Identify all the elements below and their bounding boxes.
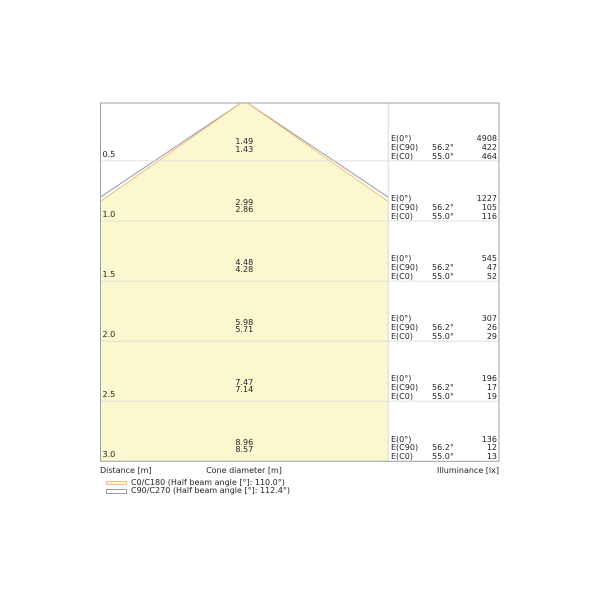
light-cone-diagram: 0.5 1.49 1.43 E(0°) 4908 E(C90) 56.2° 42…	[0, 0, 600, 600]
c90-c270-line-swatch	[106, 489, 127, 494]
illuminance-block: E(0°) 196 E(C90) 56.2° 17 E(C0) 55.0° 19	[388, 375, 499, 402]
illuminance-block: E(0°) 4908 E(C90) 56.2° 422 E(C0) 55.0° …	[388, 135, 499, 162]
cone-diameter-c0-c180-value: 5.71	[194, 326, 294, 333]
distance-tick-label: 1.5	[103, 271, 116, 279]
cone-diameter-values: 7.47 7.14	[194, 379, 294, 394]
illuminance-line-ec0: E(C0) 55.0° 19	[388, 393, 499, 402]
cone-diameter-values: 5.98 5.71	[194, 319, 294, 334]
ec0-angle: 55.0°	[432, 213, 454, 222]
distance-tick-label: 2.5	[103, 391, 116, 399]
ec0-value: 13	[487, 453, 497, 462]
illuminance-line-ec0: E(C0) 55.0° 464	[388, 153, 499, 162]
ec0-label: E(C0)	[391, 393, 413, 402]
cone-plot-svg	[0, 0, 600, 600]
ec0-angle: 55.0°	[432, 153, 454, 162]
cone-diameter-c0-c180-value: 2.86	[194, 206, 294, 213]
distance-tick-label: 3.0	[103, 451, 116, 459]
cone-diameter-c0-c180-value: 1.43	[194, 146, 294, 153]
legend-label-c90-c270: C90/C270 (Half beam angle [°]: 112.4°)	[131, 487, 290, 496]
illuminance-axis-label: Illuminance [lx]	[399, 466, 499, 475]
distance-tick-label: 1.0	[103, 211, 116, 219]
cone-diameter-values: 2.99 2.86	[194, 199, 294, 214]
c0-c180-line-swatch	[106, 481, 127, 486]
ec0-angle: 55.0°	[432, 393, 454, 402]
ec0-value: 19	[487, 393, 497, 402]
cone-diameter-values: 1.49 1.43	[194, 138, 294, 153]
ec0-label: E(C0)	[391, 333, 413, 342]
ec0-label: E(C0)	[391, 453, 413, 462]
ec0-label: E(C0)	[391, 213, 413, 222]
ec0-angle: 55.0°	[432, 273, 454, 282]
ec0-label: E(C0)	[391, 273, 413, 282]
ec0-value: 464	[482, 153, 497, 162]
illuminance-line-ec0: E(C0) 55.0° 13	[388, 453, 499, 462]
ec0-value: 52	[487, 273, 497, 282]
cone-diameter-axis-label: Cone diameter [m]	[164, 466, 324, 475]
distance-axis-label: Distance [m]	[100, 466, 152, 475]
cone-diameter-c0-c180-value: 4.28	[194, 266, 294, 273]
illuminance-line-ec0: E(C0) 55.0° 29	[388, 333, 499, 342]
cone-diameter-c0-c180-value: 8.57	[194, 446, 294, 453]
cone-diameter-values: 4.48 4.28	[194, 259, 294, 274]
cone-diameter-c0-c180-value: 7.14	[194, 386, 294, 393]
illuminance-line-ec0: E(C0) 55.0° 116	[388, 213, 499, 222]
ec0-value: 116	[482, 213, 497, 222]
ec0-label: E(C0)	[391, 153, 413, 162]
ec0-angle: 55.0°	[432, 333, 454, 342]
illuminance-line-ec0: E(C0) 55.0° 52	[388, 273, 499, 282]
ec0-value: 29	[487, 333, 497, 342]
illuminance-block: E(0°) 136 E(C90) 56.2° 12 E(C0) 55.0° 13	[388, 436, 499, 463]
ec0-angle: 55.0°	[432, 453, 454, 462]
distance-tick-label: 0.5	[103, 151, 116, 159]
illuminance-block: E(0°) 307 E(C90) 56.2° 26 E(C0) 55.0° 29	[388, 315, 499, 342]
cone-diameter-values: 8.96 8.57	[194, 439, 294, 454]
distance-tick-label: 2.0	[103, 331, 116, 339]
illuminance-block: E(0°) 1227 E(C90) 56.2° 105 E(C0) 55.0° …	[388, 195, 499, 222]
illuminance-block: E(0°) 545 E(C90) 56.2° 47 E(C0) 55.0° 52	[388, 255, 499, 282]
